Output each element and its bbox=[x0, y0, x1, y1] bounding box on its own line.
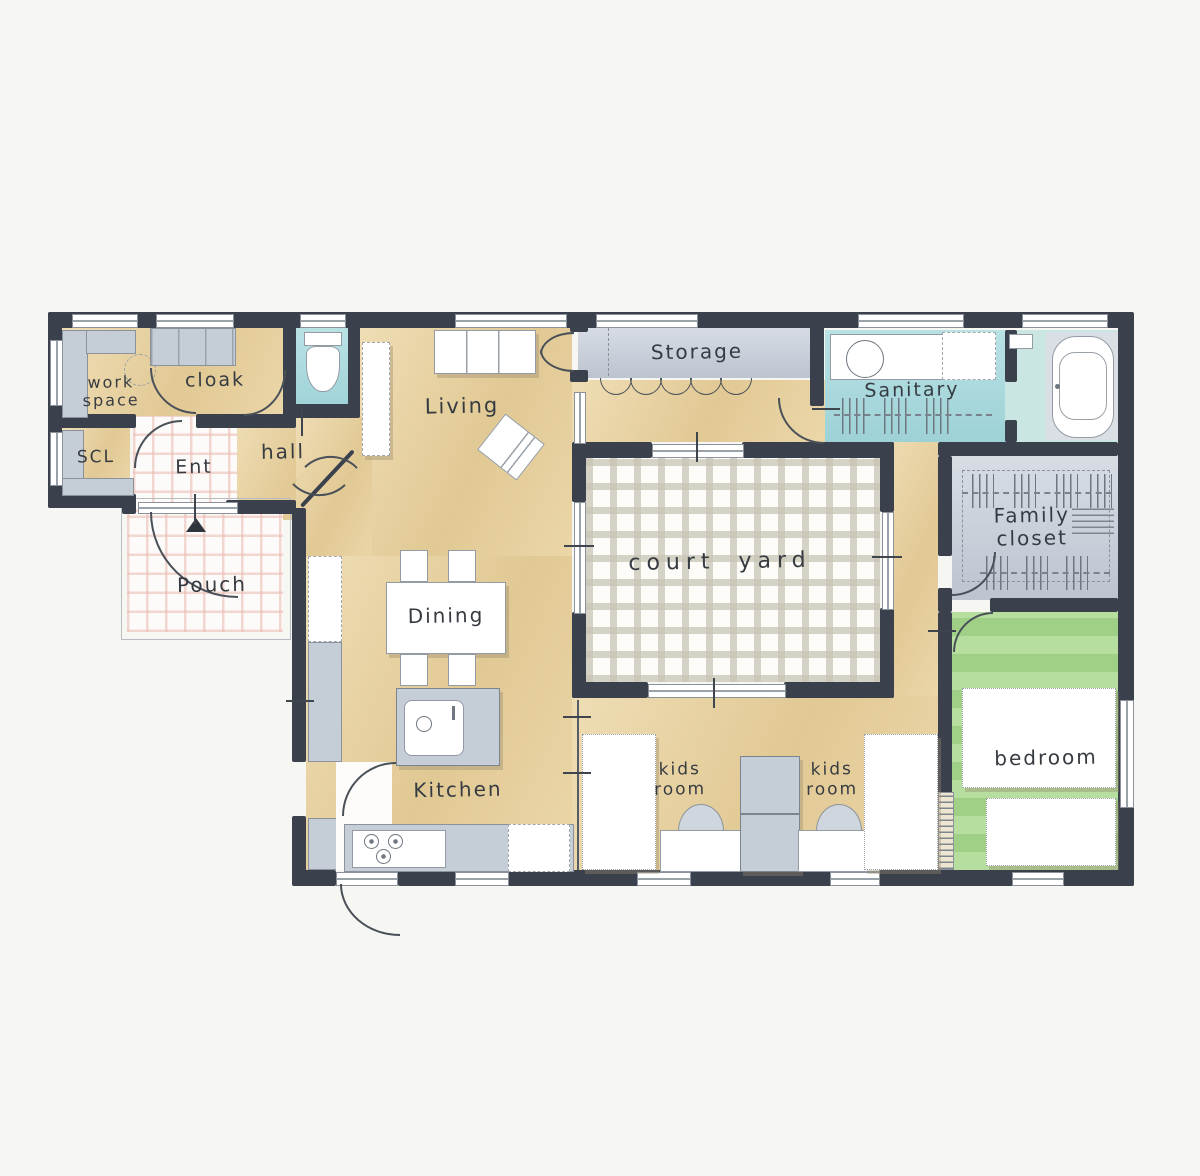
label-porch: Pouch bbox=[177, 573, 247, 597]
wall-ent-west bbox=[122, 494, 136, 514]
wall-bottom-left bbox=[292, 870, 336, 886]
washing-machine bbox=[942, 332, 996, 380]
closet-hanger-1 bbox=[972, 474, 994, 508]
label-dining: Dining bbox=[408, 604, 485, 628]
closet-hanger-4 bbox=[1090, 474, 1112, 508]
window-court-north bbox=[652, 444, 744, 458]
label-work-space: work space bbox=[74, 373, 149, 411]
sanitary-drying-rod bbox=[834, 414, 992, 416]
kids-bed-2 bbox=[864, 734, 938, 870]
bedroom-closet-hatch bbox=[938, 792, 954, 870]
tick-kids-partition-1 bbox=[563, 716, 591, 718]
sanitary-hanger-3 bbox=[926, 398, 950, 434]
kitchen-cabinet-west bbox=[308, 642, 342, 762]
tick-kitchen-west bbox=[286, 700, 314, 702]
window-workspace-top bbox=[72, 314, 138, 328]
label-living: Living bbox=[425, 393, 500, 418]
stove-burner-1 bbox=[364, 834, 379, 849]
dining-chair-2 bbox=[448, 550, 476, 582]
wall-closet-north bbox=[938, 442, 1118, 456]
window-court-west bbox=[574, 502, 586, 614]
label-courtyard: court yard bbox=[628, 548, 812, 576]
label-bedroom: bedroom bbox=[994, 746, 1098, 771]
tick-court-south bbox=[713, 678, 715, 708]
label-cloak: cloak bbox=[185, 370, 245, 393]
window-court-south bbox=[648, 684, 786, 698]
label-storage: Storage bbox=[651, 340, 744, 365]
island-sink-drain bbox=[416, 716, 432, 732]
window-kids2-bottom bbox=[830, 872, 880, 886]
kids-wardrobe bbox=[740, 756, 800, 872]
sanitary-hanger-1 bbox=[842, 398, 866, 434]
scl-shelf-bottom bbox=[62, 478, 134, 496]
wall-storage-pier-top bbox=[570, 312, 588, 332]
wall-closet-west-upper bbox=[938, 456, 952, 556]
sanitary-hanger-2 bbox=[884, 398, 908, 434]
wall-closet-bedroom bbox=[990, 598, 1118, 612]
wall-cloak-south bbox=[196, 414, 296, 428]
window-kitchen-bottom bbox=[455, 872, 509, 886]
bathtub-drain bbox=[1055, 384, 1060, 389]
label-family-closet: Family closet bbox=[974, 503, 1091, 551]
kids-partition-line bbox=[577, 700, 579, 870]
window-sanitary-top bbox=[858, 314, 964, 328]
window-bedroom-right bbox=[1120, 700, 1134, 808]
tick-kids-partition-2 bbox=[563, 772, 591, 774]
stove-burner-3 bbox=[376, 849, 391, 864]
tick-court-east bbox=[872, 556, 902, 558]
toilet-tank bbox=[304, 332, 342, 346]
wall-court-s2 bbox=[784, 682, 894, 698]
window-toilet-top bbox=[300, 314, 346, 328]
window-storage-top bbox=[596, 314, 698, 328]
label-kids-room-1: kids room bbox=[644, 760, 717, 800]
window-bath-top bbox=[1022, 314, 1108, 328]
tick-front-door bbox=[194, 494, 196, 524]
wall-court-e1 bbox=[880, 442, 894, 512]
dining-chair-1 bbox=[400, 550, 428, 582]
tick-corridor-east bbox=[928, 630, 956, 632]
wall-court-w1 bbox=[572, 442, 586, 502]
wall-ldk-west-lower bbox=[292, 816, 306, 872]
tick-toilet-wall bbox=[301, 406, 303, 436]
wall-court-s1 bbox=[572, 682, 648, 698]
closet-rod-top bbox=[962, 492, 1112, 494]
floor-plan: work space cloak SCL Ent hall Pouch Livi… bbox=[0, 0, 1200, 1176]
fridge-space bbox=[508, 824, 570, 872]
tick-court-north bbox=[696, 432, 698, 462]
wall-storage-east bbox=[810, 326, 824, 406]
label-kitchen: Kitchen bbox=[413, 778, 503, 803]
wall-ldk-west-upper bbox=[292, 508, 306, 762]
bed-single bbox=[986, 798, 1116, 866]
vanity-sink bbox=[846, 340, 884, 378]
kids-desk-1 bbox=[660, 830, 742, 872]
label-ent: Ent bbox=[175, 457, 213, 479]
dining-chair-4 bbox=[448, 654, 476, 686]
tick-court-west bbox=[564, 545, 594, 547]
window-court-east bbox=[882, 512, 894, 610]
window-kids1-bottom bbox=[637, 872, 691, 886]
cloak-cabinet bbox=[150, 328, 236, 366]
label-sanitary: Sanitary bbox=[864, 379, 960, 403]
shower-fixture bbox=[1009, 334, 1033, 349]
door-back-exit bbox=[340, 884, 400, 936]
sofa bbox=[434, 330, 536, 374]
bathtub-inner bbox=[1059, 352, 1107, 420]
window-living-top bbox=[455, 314, 567, 328]
wall-closet-west-stub bbox=[938, 588, 952, 612]
wall-court-n2 bbox=[742, 442, 894, 458]
pantry-shelf bbox=[308, 556, 342, 642]
tick-sanitary-door bbox=[812, 408, 840, 410]
tv-board bbox=[362, 342, 390, 456]
label-scl: SCL bbox=[77, 448, 115, 468]
wall-bath-divider-bottom bbox=[1005, 420, 1017, 442]
window-corridor-west-glass bbox=[574, 392, 586, 444]
wall-toilet-east bbox=[348, 326, 360, 416]
kids-bed-1 bbox=[582, 734, 656, 870]
window-bedroom-bottom bbox=[1012, 872, 1064, 886]
storage-divider bbox=[608, 328, 611, 376]
island-faucet bbox=[452, 706, 455, 720]
label-kids-room-2: kids room bbox=[796, 760, 869, 800]
dining-chair-3 bbox=[400, 654, 428, 686]
stove-burner-2 bbox=[388, 834, 403, 849]
work-desk-top bbox=[86, 330, 136, 354]
closet-rod-bottom bbox=[980, 572, 1110, 574]
label-hall: hall bbox=[261, 440, 305, 464]
bed-double bbox=[962, 688, 1116, 788]
island-sink bbox=[404, 700, 464, 756]
window-cloak-top bbox=[156, 314, 234, 328]
